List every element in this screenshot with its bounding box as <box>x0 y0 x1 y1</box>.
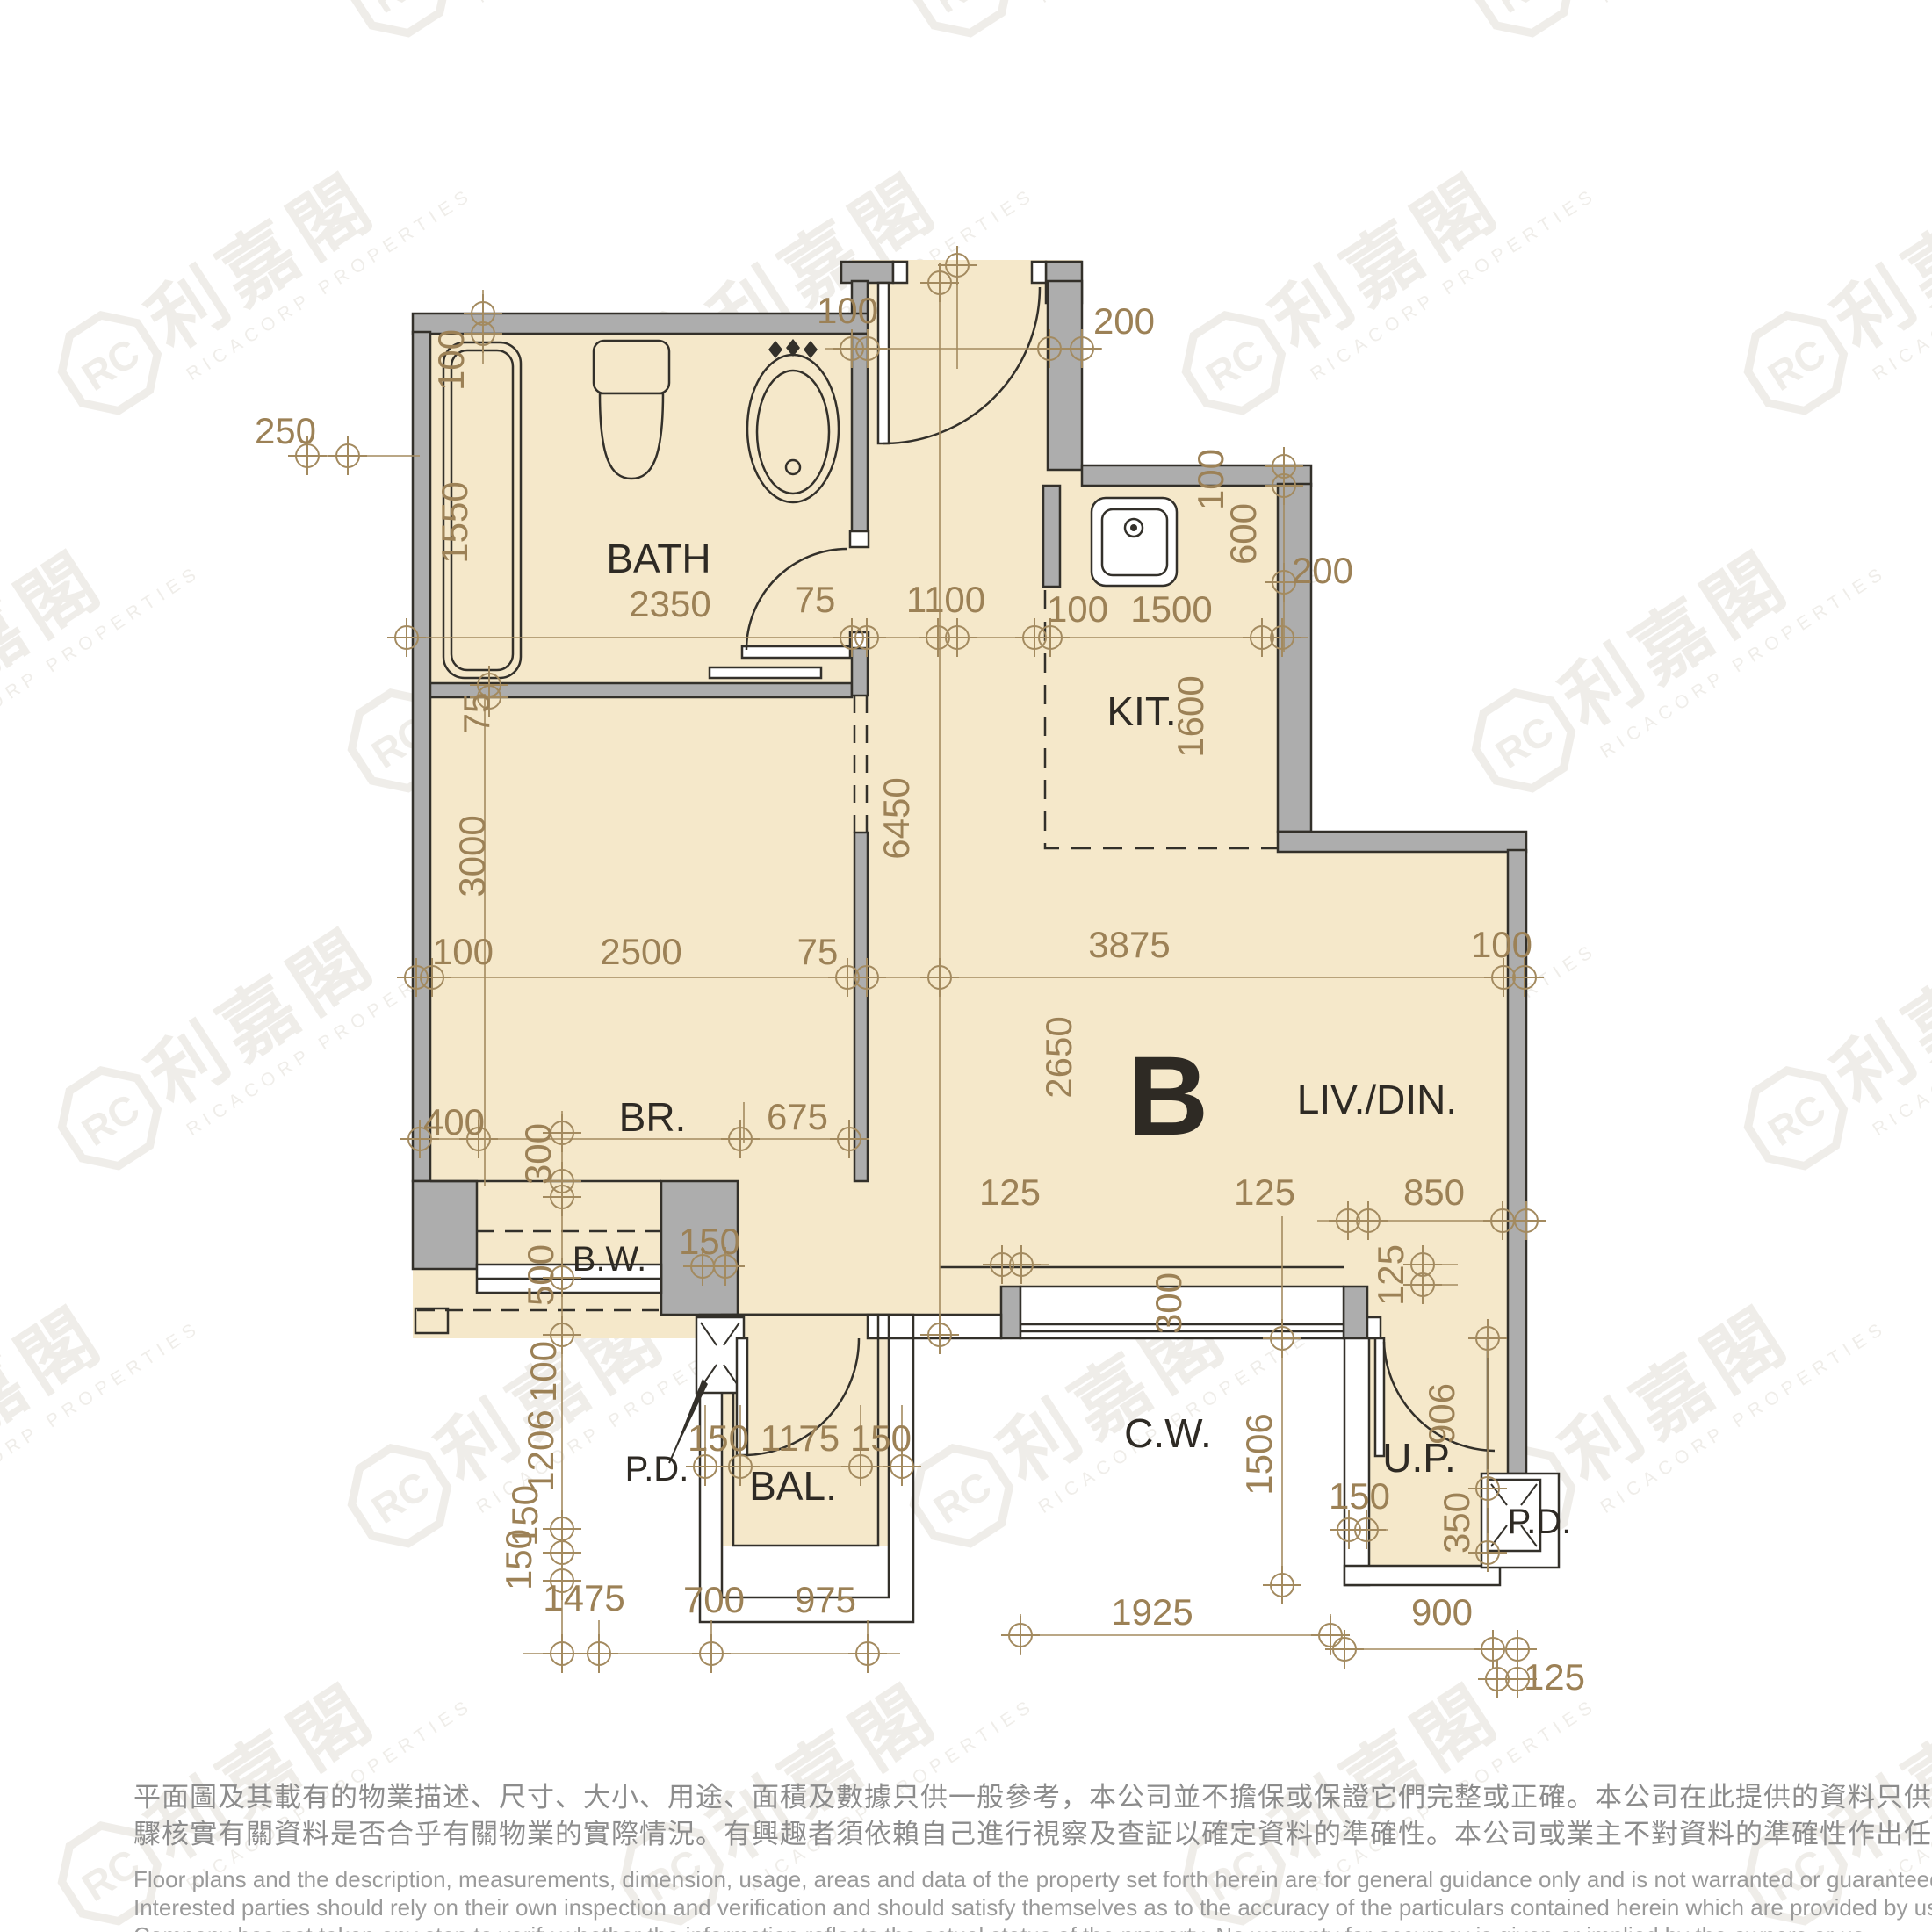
room-label: BATH <box>606 536 710 581</box>
bath-shelf <box>710 667 821 678</box>
basin-drain <box>786 460 800 474</box>
dim-label-rotated: 75 <box>456 693 497 734</box>
dim-label: 2500 <box>600 931 681 972</box>
watermark: RC利嘉閣RICACORP PROPERTIES <box>1461 487 1891 819</box>
floor-plan-drawing: RC利嘉閣RICACORP PROPERTIESRC利嘉閣RICACORP PR… <box>0 0 1932 1932</box>
room-label: BR. <box>619 1094 687 1140</box>
dim-label-rotated: 350 <box>1436 1492 1477 1554</box>
watermark: RC利嘉閣RICACORP PROPERTIES <box>1171 110 1601 442</box>
room-label: LIV./DIN. <box>1297 1077 1457 1122</box>
dim-label: 400 <box>423 1101 485 1143</box>
disclaimer-zh-line1: 平面圖及其載有的物業描述、尺寸、大小、用途、面積及數據只供一般參考，本公司並不擔… <box>133 1779 1864 1816</box>
dim-label: 150 <box>1329 1475 1390 1517</box>
disclaimer-en-line3: Company has not taken any step to verify… <box>133 1921 1864 1932</box>
dim-label: 125 <box>1524 1656 1585 1698</box>
bath-jamb-top <box>850 531 869 547</box>
corridor-wall-upper <box>852 334 868 532</box>
dim-label: 75 <box>797 931 839 972</box>
dim-label-rotated: 600 <box>1222 503 1264 565</box>
dim-label-rotated: 100 <box>1190 449 1231 510</box>
dim-label: 1925 <box>1111 1591 1193 1633</box>
watermark-cjk-text: 利嘉閣 <box>1820 913 1932 1121</box>
watermark-monogram: RC <box>926 1462 999 1532</box>
watermark-latin-text: RICACORP PROPERTIES <box>0 0 205 7</box>
disclaimer-en-line1: Floor plans and the description, measure… <box>133 1865 1864 1893</box>
dim-label-rotated: 3000 <box>451 815 493 897</box>
dim-label-rotated: 100 <box>523 1341 564 1402</box>
watermark: RC利嘉閣RICACORP PROPERTIES <box>1734 110 1932 442</box>
watermark-monogram: RC <box>1760 1085 1834 1155</box>
watermark: RC利嘉閣RICACORP PROPERTIES <box>1734 865 1932 1197</box>
main-floor <box>413 260 1526 1338</box>
dim-label: 75 <box>795 579 836 620</box>
kit-left-stub <box>1043 486 1060 587</box>
dim-label: 100 <box>817 290 878 331</box>
bath-door-leaf <box>742 646 850 658</box>
dim-label: 1475 <box>543 1577 624 1618</box>
entry-jamb-left <box>893 262 907 283</box>
watermark-monogram: RC <box>1198 329 1272 400</box>
dim-label-rotated: 1506 <box>1238 1413 1280 1495</box>
dim-label-rotated: 500 <box>520 1244 561 1306</box>
watermark: RC利嘉閣RICACORP PROPERTIES <box>899 0 1329 63</box>
cw-left-pier <box>1001 1287 1020 1338</box>
entry-top-wall-left <box>841 262 893 283</box>
dim-label: 250 <box>255 410 316 451</box>
bw-left-pier <box>413 1181 477 1269</box>
watermark-monogram: RC <box>1760 329 1834 400</box>
toilet-tank <box>594 341 669 393</box>
unit-label: B <box>1128 1034 1208 1159</box>
dim-label: 150 <box>688 1417 749 1459</box>
watermark: RC利嘉閣RICACORP PROPERTIES <box>1461 0 1891 63</box>
watermark-latin-text: RICACORP PROPERTIES <box>1597 0 1891 7</box>
dim-label: 3875 <box>1088 924 1170 965</box>
room-label: BAL. <box>749 1463 837 1509</box>
watermark-latin-text: RICACORP PROPERTIES <box>1034 0 1329 7</box>
dim-label: 150 <box>679 1221 740 1262</box>
dim-label-rotated: 100 <box>430 329 472 391</box>
dim-label: 1175 <box>761 1417 840 1459</box>
watermark-monogram: RC <box>74 1085 148 1155</box>
dim-label: 975 <box>795 1579 856 1620</box>
cw-right-pier <box>1344 1287 1367 1338</box>
dim-label-rotated: 125 <box>1370 1244 1411 1306</box>
room-label: P.D. <box>625 1450 689 1489</box>
dim-label: 100 <box>1047 588 1108 630</box>
room-label: U.P. <box>1382 1435 1456 1481</box>
dim-label: 100 <box>1471 924 1532 965</box>
watermark: RC利嘉閣RICACORP PROPERTIES <box>337 0 767 63</box>
watermark: RC利嘉閣RICACORP PROPERTIES <box>0 0 205 63</box>
disclaimer-zh-line2: 驟核實有關資料是否合乎有關物業的實際情況。有興趣者須依賴自己進行視察及查証以確定… <box>133 1816 1864 1853</box>
watermark-latin-text: RICACORP PROPERTIES <box>472 0 767 7</box>
dim-label: 1100 <box>906 579 985 620</box>
watermark: RC利嘉閣RICACORP PROPERTIES <box>0 487 205 819</box>
bath-top-wall <box>413 314 868 334</box>
left-ledge <box>415 1308 448 1333</box>
sink-faucet-dot <box>1130 524 1137 531</box>
dim-label: 200 <box>1292 550 1353 591</box>
dim-label: 125 <box>1234 1171 1295 1213</box>
corridor-wall-stub <box>852 646 868 696</box>
room-label: C.W. <box>1124 1410 1212 1456</box>
room-label: B.W. <box>573 1240 646 1279</box>
dim-label-rotated: 150 <box>498 1529 539 1590</box>
watermark-monogram: RC <box>1488 707 1561 777</box>
basin-faucet <box>768 339 818 358</box>
kit-right-wall <box>1278 484 1311 832</box>
dim-label: 200 <box>1093 300 1155 342</box>
watermark-cjk-text: 利嘉閣 <box>1820 158 1932 366</box>
watermark-monogram: RC <box>364 1462 437 1532</box>
br-right-wall <box>854 833 868 1181</box>
dim-label-rotated: 300 <box>517 1123 559 1185</box>
watermark: RC利嘉閣RICACORP PROPERTIES <box>0 1243 205 1575</box>
dim-label: 900 <box>1411 1591 1473 1633</box>
dim-label-rotated: 2650 <box>1038 1016 1079 1098</box>
entry-door-leaf <box>878 283 889 443</box>
dim-label-rotated: 1550 <box>434 481 475 563</box>
up-jamb <box>1367 1317 1381 1338</box>
disclaimer-en-line2: Interested parties should rely on their … <box>133 1893 1864 1921</box>
watermark-monogram: RC <box>74 329 148 400</box>
room-label: P.D. <box>1508 1503 1572 1541</box>
floorplan-page: RC利嘉閣RICACORP PROPERTIESRC利嘉閣RICACORP PR… <box>0 0 1932 1932</box>
dim-label: 100 <box>432 931 494 972</box>
entry-jamb-right <box>1032 262 1046 283</box>
liv-step-wall <box>1278 832 1526 852</box>
disclaimer: 平面圖及其載有的物業描述、尺寸、大小、用途、面積及數據只供一般參考，本公司並不擔… <box>133 1779 1864 1932</box>
dim-label: 125 <box>979 1171 1041 1213</box>
dim-label: 150 <box>850 1417 912 1459</box>
up-bottom-band <box>1344 1566 1500 1585</box>
dim-label: 850 <box>1403 1171 1465 1213</box>
dim-label-rotated: 1206 <box>520 1409 561 1491</box>
dim-label: 2350 <box>629 583 710 624</box>
room-label: KIT. <box>1107 688 1176 734</box>
dim-label-rotated: 300 <box>1148 1272 1189 1334</box>
left-outer-wall <box>413 332 430 1181</box>
dim-label: 1500 <box>1130 588 1212 630</box>
dim-label: 700 <box>683 1579 745 1620</box>
dim-label-rotated: 6450 <box>876 777 917 859</box>
lobby-right-wall <box>1048 281 1082 470</box>
dim-label: 675 <box>767 1096 828 1137</box>
